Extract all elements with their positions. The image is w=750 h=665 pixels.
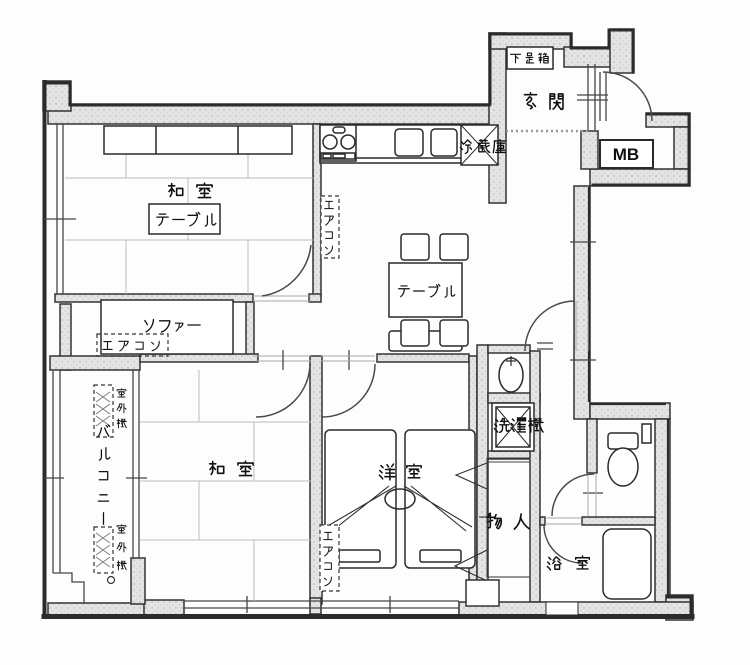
svg-text:MB: MB xyxy=(613,145,639,164)
